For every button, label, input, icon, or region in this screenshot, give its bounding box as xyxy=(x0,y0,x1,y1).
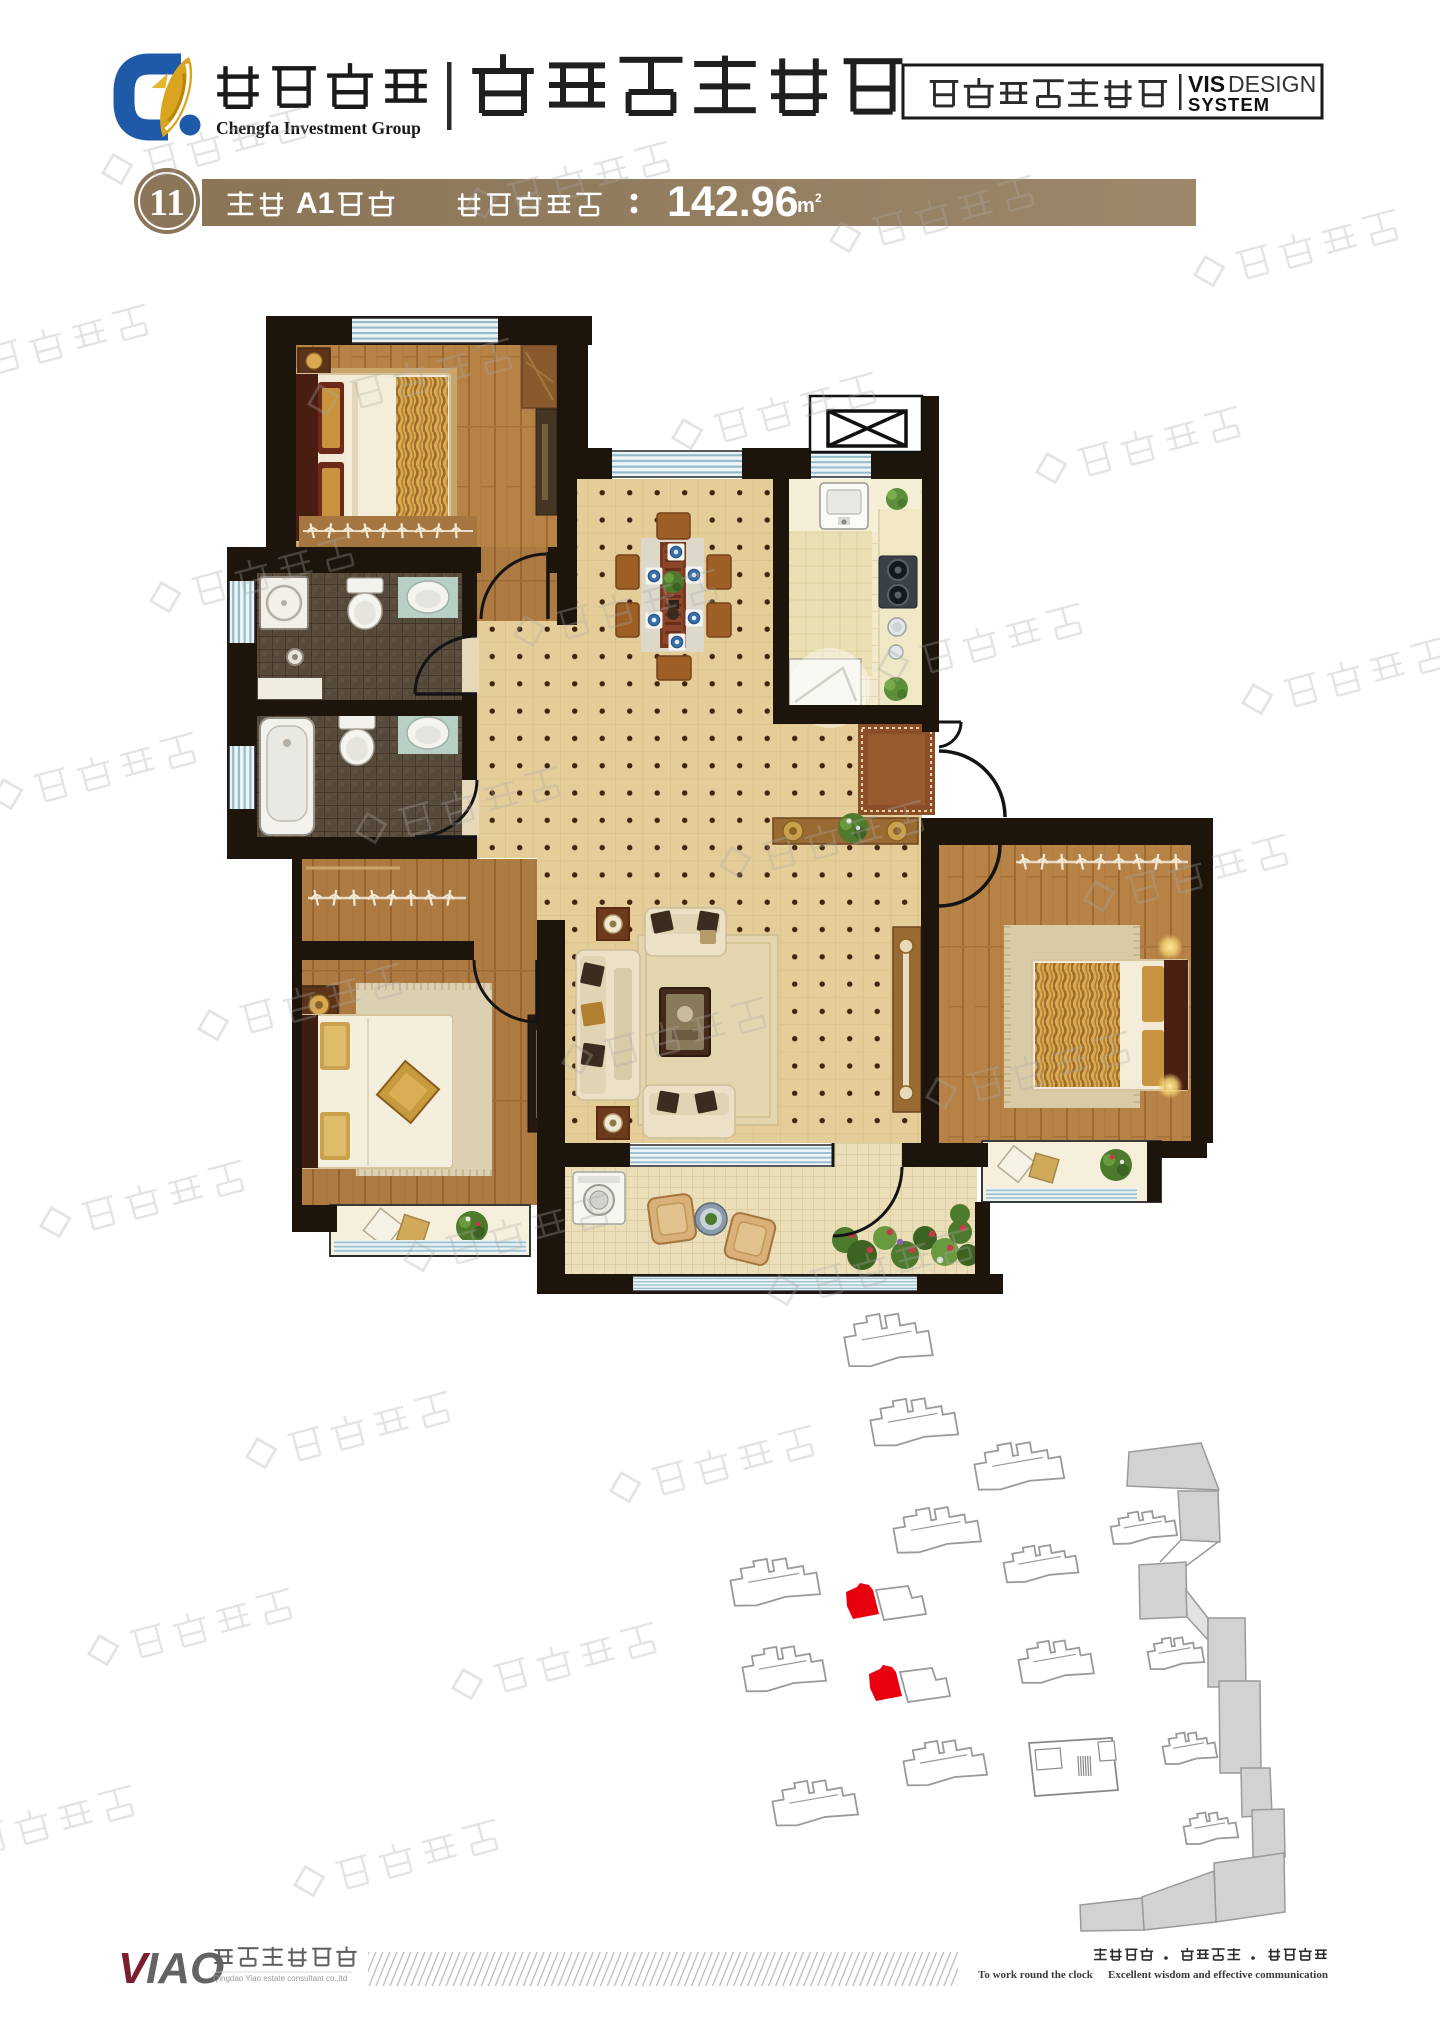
svg-text:Qingdao Yiao estate consultant: Qingdao Yiao estate consultant co.,ltd xyxy=(213,1974,347,1983)
svg-text:11: 11 xyxy=(149,182,185,224)
svg-text:A1: A1 xyxy=(296,187,334,220)
svg-text:m: m xyxy=(797,195,815,217)
svg-text:To work round the clock: To work round the clock xyxy=(978,1969,1094,1981)
svg-text:Excellent wisdom and effective: Excellent wisdom and effective communica… xyxy=(1108,1969,1328,1981)
svg-text:2: 2 xyxy=(815,191,822,205)
svg-text:IAO: IAO xyxy=(146,1944,224,1993)
svg-text:142.96: 142.96 xyxy=(667,178,799,226)
svg-text:SYSTEM: SYSTEM xyxy=(1188,94,1270,115)
svg-text:Chengfa Investment Group: Chengfa Investment Group xyxy=(216,118,421,138)
